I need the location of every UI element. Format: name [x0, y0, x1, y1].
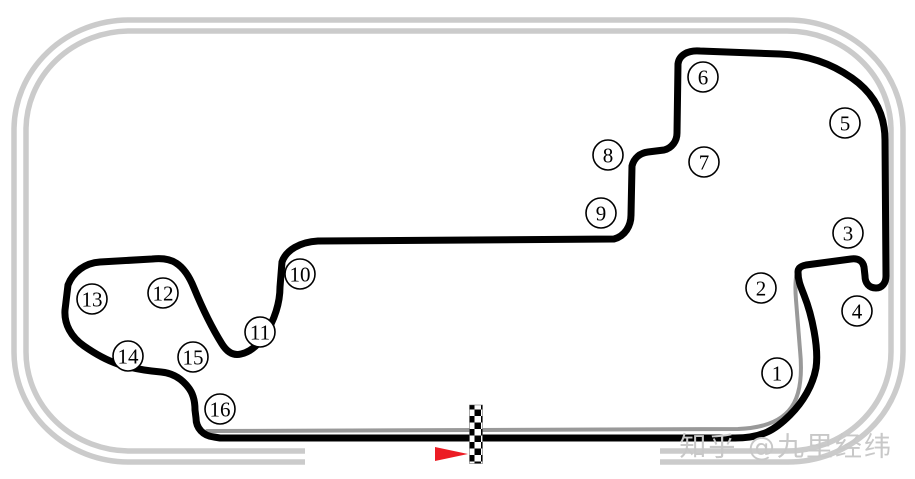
- watermark-text: 知乎 @九里经纬: [679, 432, 893, 463]
- turn-marker-4: 4: [842, 296, 872, 326]
- turn-number-label: 12: [153, 281, 174, 305]
- turn-number-label: 8: [603, 143, 614, 167]
- turn-marker-13: 13: [77, 284, 107, 314]
- turn-marker-9: 9: [586, 198, 616, 228]
- turn-number-label: 3: [843, 221, 854, 245]
- turn-marker-1: 1: [762, 358, 792, 388]
- turn-marker-5: 5: [830, 108, 860, 138]
- turn-marker-10: 10: [285, 259, 315, 289]
- turn-marker-8: 8: [593, 140, 623, 170]
- turn-number-label: 11: [250, 320, 270, 344]
- turn-number-label: 14: [118, 344, 140, 368]
- turn-number-label: 7: [699, 150, 710, 174]
- turn-marker-15: 15: [178, 342, 208, 372]
- turn-number-label: 9: [596, 201, 607, 225]
- turn-number-label: 13: [82, 287, 103, 311]
- turn-marker-16: 16: [205, 394, 235, 424]
- turn-number-label: 10: [290, 262, 311, 286]
- start-finish-line: [470, 405, 483, 464]
- turn-number-label: 15: [183, 345, 204, 369]
- turn-number-label: 1: [772, 361, 783, 385]
- turn-marker-12: 12: [148, 278, 178, 308]
- turn-number-label: 4: [852, 299, 863, 323]
- turn-number-label: 6: [698, 65, 709, 89]
- turn-number-label: 5: [840, 111, 851, 135]
- track-map: 12345678910111213141516 知乎 @九里经纬: [0, 0, 915, 479]
- turn-marker-3: 3: [833, 218, 863, 248]
- turn-number-label: 16: [210, 397, 231, 421]
- track-map-svg: 12345678910111213141516 知乎 @九里经纬: [0, 0, 915, 479]
- turn-marker-14: 14: [113, 341, 143, 371]
- turn-marker-6: 6: [688, 62, 718, 92]
- turn-number-label: 2: [756, 276, 767, 300]
- turn-marker-7: 7: [689, 147, 719, 177]
- oval-shared-section: [207, 272, 801, 431]
- turn-marker-11: 11: [245, 317, 275, 347]
- turn-marker-2: 2: [746, 273, 776, 303]
